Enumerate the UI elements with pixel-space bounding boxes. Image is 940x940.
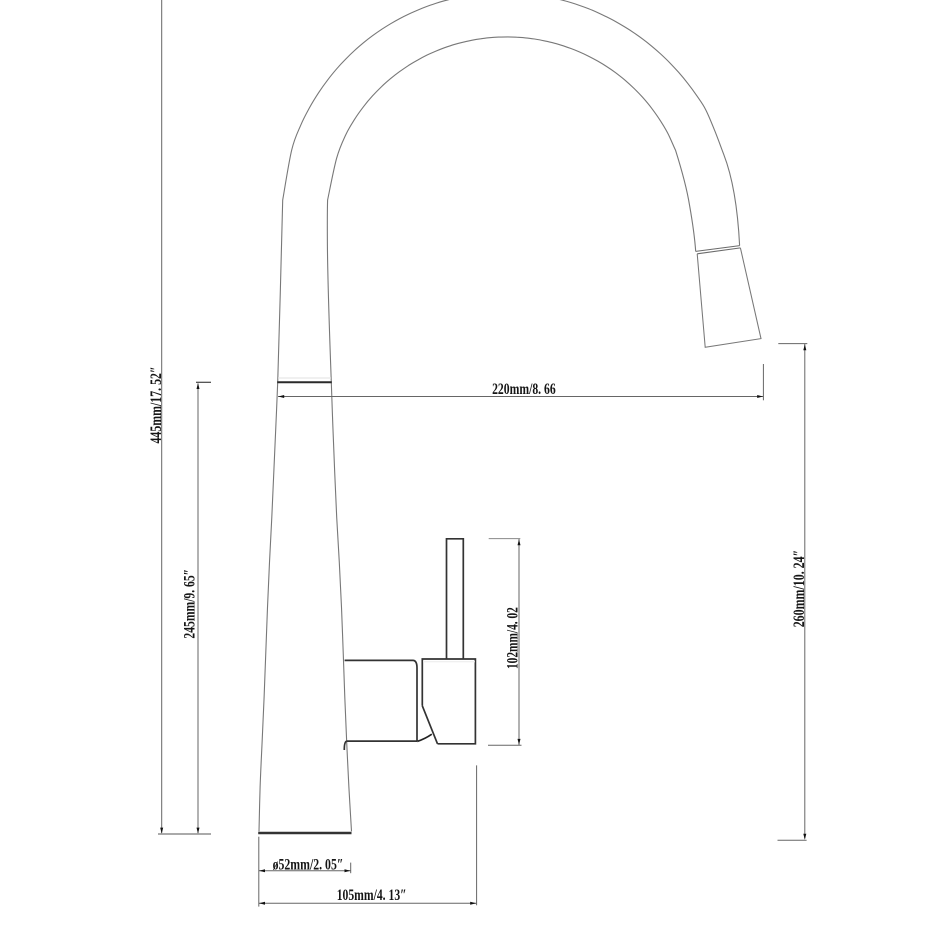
- svg-text:445mm/17. 52″: 445mm/17. 52″: [148, 367, 165, 444]
- svg-text:102mm/4. 02: 102mm/4. 02: [505, 607, 522, 669]
- svg-text:ø52mm/2. 05″: ø52mm/2. 05″: [273, 856, 344, 873]
- svg-text:245mm/9. 65″: 245mm/9. 65″: [182, 569, 199, 639]
- svg-text:220mm/8. 66: 220mm/8. 66: [492, 381, 556, 398]
- svg-text:105mm/4. 13″: 105mm/4. 13″: [337, 887, 407, 904]
- svg-text:260mm/10. 24″: 260mm/10. 24″: [791, 550, 808, 628]
